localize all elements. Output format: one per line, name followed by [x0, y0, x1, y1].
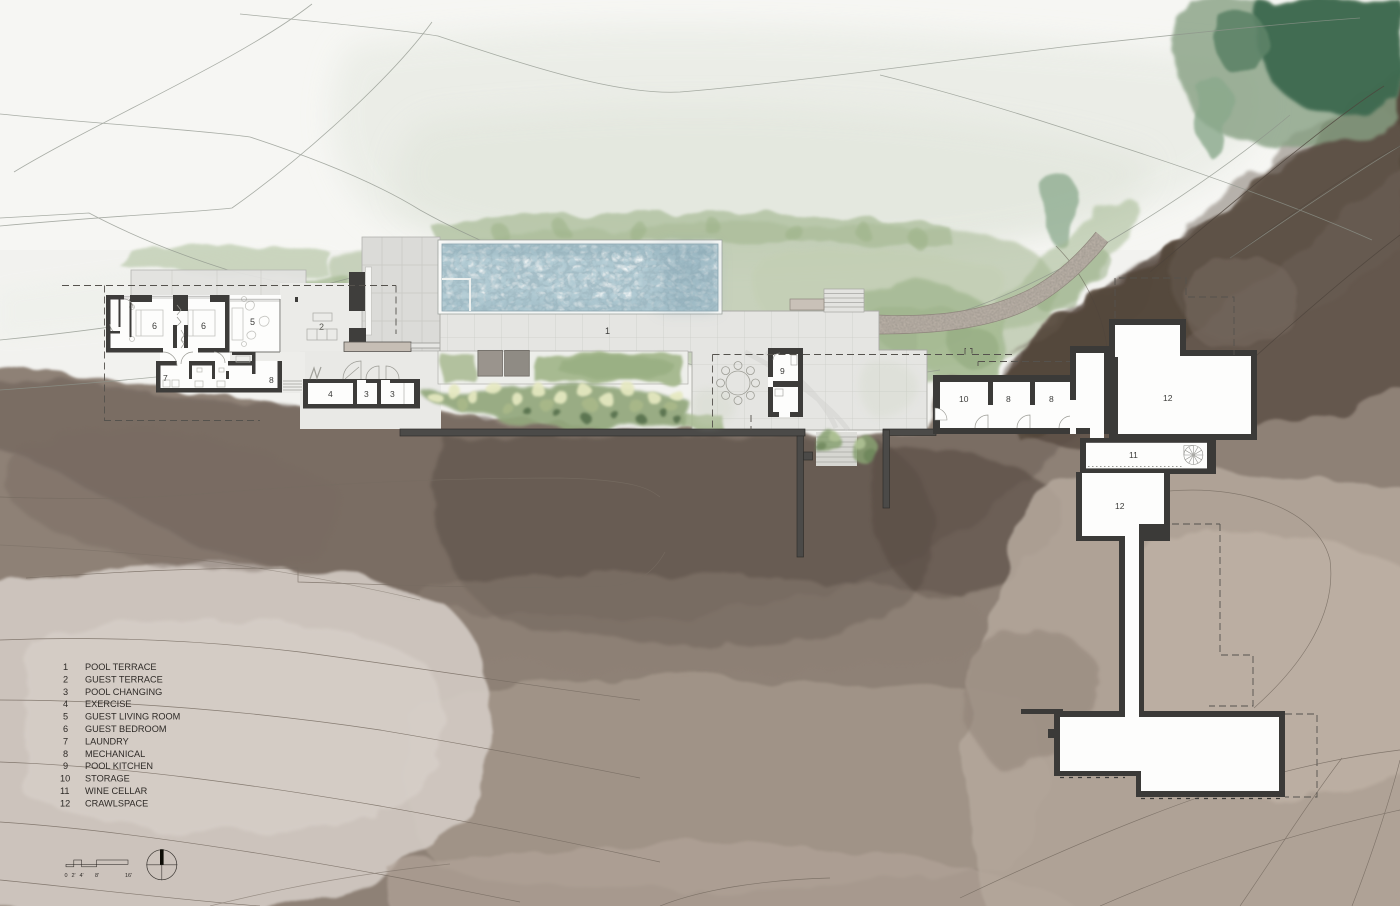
svg-text:GUEST LIVING ROOM: GUEST LIVING ROOM [85, 712, 180, 722]
svg-text:3: 3 [390, 389, 395, 399]
svg-text:CRAWLSPACE: CRAWLSPACE [85, 798, 148, 808]
svg-text:WINE CELLAR: WINE CELLAR [85, 786, 148, 796]
svg-text:12: 12 [60, 798, 70, 808]
svg-text:4: 4 [63, 699, 68, 709]
svg-text:3: 3 [63, 687, 68, 697]
svg-text:8': 8' [95, 873, 99, 879]
svg-text:2: 2 [63, 674, 68, 684]
svg-text:7: 7 [163, 373, 168, 383]
svg-text:12: 12 [1115, 501, 1125, 511]
svg-text:2: 2 [319, 322, 324, 332]
svg-text:GUEST TERRACE: GUEST TERRACE [85, 674, 163, 684]
svg-text:5: 5 [63, 712, 68, 722]
svg-text:11: 11 [60, 786, 70, 796]
svg-text:1: 1 [63, 662, 68, 672]
svg-text:8: 8 [1049, 394, 1054, 404]
svg-text:POOL KITCHEN: POOL KITCHEN [85, 761, 153, 771]
svg-text:9: 9 [780, 366, 785, 376]
svg-text:10: 10 [959, 394, 969, 404]
svg-text:8: 8 [1006, 394, 1011, 404]
svg-text:16': 16' [125, 873, 132, 879]
svg-text:11: 11 [1129, 450, 1138, 460]
svg-text:EXERCISE: EXERCISE [85, 699, 131, 709]
svg-text:8: 8 [63, 749, 68, 759]
svg-text:STORAGE: STORAGE [85, 774, 130, 784]
svg-text:6: 6 [201, 321, 206, 331]
svg-text:4': 4' [80, 873, 84, 879]
svg-text:5: 5 [250, 317, 255, 327]
svg-text:6: 6 [63, 724, 68, 734]
svg-text:12: 12 [1163, 393, 1173, 403]
svg-text:GUEST BEDROOM: GUEST BEDROOM [85, 724, 167, 734]
svg-text:10: 10 [60, 774, 70, 784]
svg-text:8: 8 [269, 375, 274, 385]
svg-text:7: 7 [63, 736, 68, 746]
svg-text:0: 0 [65, 873, 68, 879]
svg-text:MECHANICAL: MECHANICAL [85, 749, 145, 759]
svg-text:POOL CHANGING: POOL CHANGING [85, 687, 162, 697]
svg-text:1: 1 [605, 326, 610, 336]
svg-text:2': 2' [72, 873, 76, 879]
svg-text:4: 4 [328, 389, 333, 399]
svg-text:9: 9 [63, 761, 68, 771]
svg-text:6: 6 [152, 321, 157, 331]
svg-text:LAUNDRY: LAUNDRY [85, 736, 129, 746]
svg-text:3: 3 [364, 389, 369, 399]
svg-text:POOL TERRACE: POOL TERRACE [85, 662, 156, 672]
